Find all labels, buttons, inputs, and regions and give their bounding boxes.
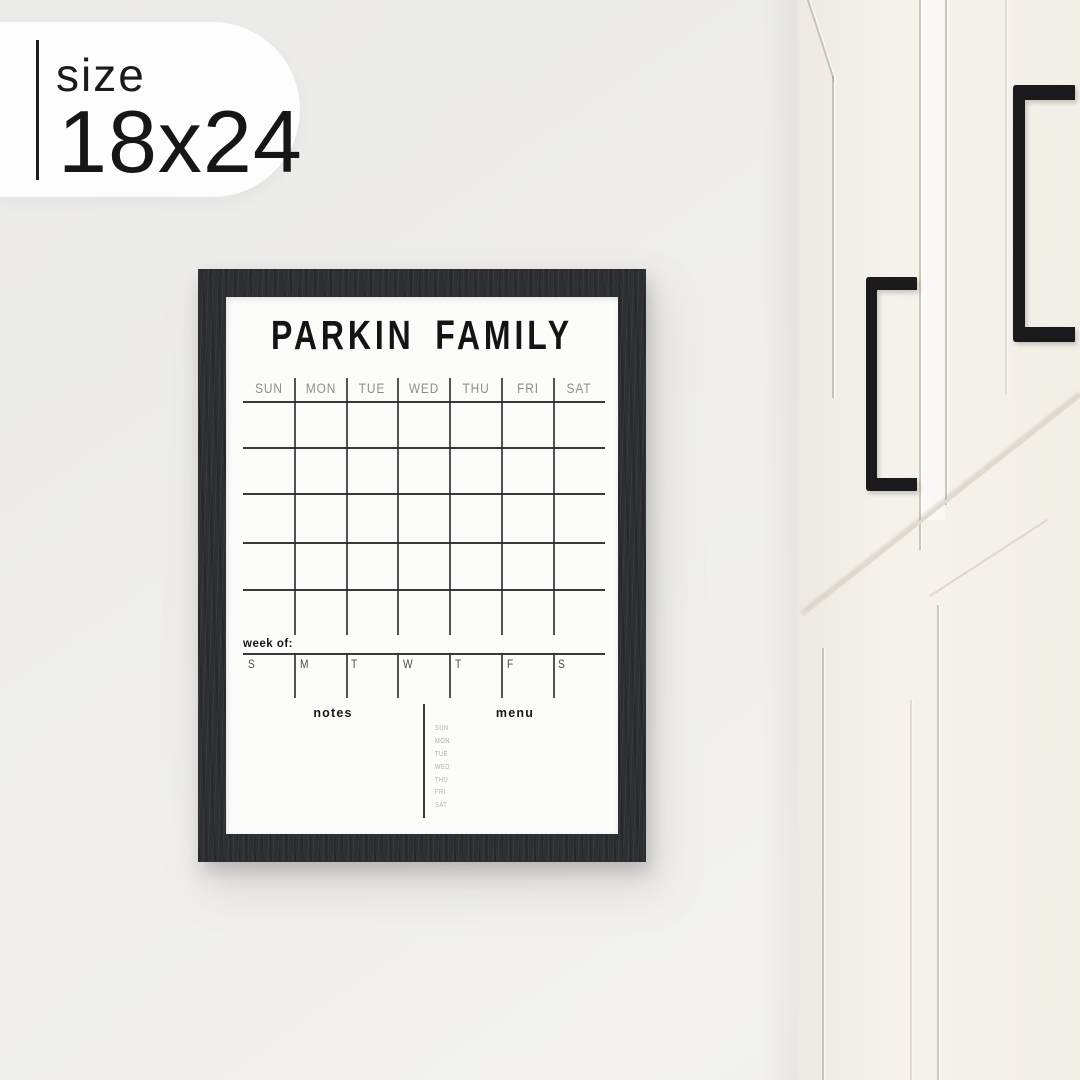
week-day-letter: S	[558, 657, 565, 671]
size-value: 18x24	[58, 98, 303, 186]
cabinet-door-gap	[937, 605, 939, 1080]
cabinet-panel-groove	[832, 76, 834, 398]
week-grid-vline	[501, 653, 503, 698]
framed-calendar: PARKIN FAMILY SUN MON TUE WED THU FRI SA…	[198, 269, 646, 862]
notes-menu-divider	[423, 704, 425, 818]
wall-corner-shadow	[762, 0, 798, 1080]
menu-day-fri: FRI	[435, 787, 450, 800]
menu-day-thu: THU	[435, 775, 450, 788]
day-header-wed: WED	[401, 382, 447, 398]
cabinet-panel-groove	[1005, 0, 1007, 395]
month-grid-hline	[243, 542, 605, 544]
day-header-fri: FRI	[505, 382, 551, 398]
menu-day-sat: SAT	[435, 800, 450, 813]
menu-day-wed: WED	[435, 762, 450, 775]
day-header-sun: SUN	[246, 382, 292, 398]
menu-day-sun: SUN	[435, 723, 450, 736]
day-header-mon: MON	[298, 382, 344, 398]
month-grid-vline	[501, 378, 503, 635]
day-header-tue: TUE	[349, 382, 395, 398]
week-day-letter: T	[351, 657, 357, 671]
week-grid-vline	[449, 653, 451, 698]
month-grid-vline	[346, 378, 348, 635]
calendar-title: PARKIN FAMILY	[269, 315, 575, 356]
week-grid-vline	[294, 653, 296, 698]
calendar-board: PARKIN FAMILY SUN MON TUE WED THU FRI SA…	[226, 297, 618, 834]
cabinet-handle	[1013, 85, 1075, 342]
month-grid-hline	[243, 493, 605, 495]
week-day-letter: T	[455, 657, 461, 671]
month-grid-vline	[294, 378, 296, 635]
month-grid-hline	[243, 447, 605, 449]
menu-day-tue: TUE	[435, 749, 450, 762]
month-grid-vline	[397, 378, 399, 635]
week-grid-vline	[346, 653, 348, 698]
month-grid-hline	[243, 589, 605, 591]
cabinet-handle	[866, 277, 917, 491]
week-day-letter: W	[403, 657, 413, 671]
week-grid-vline	[397, 653, 399, 698]
day-header-thu: THU	[453, 382, 499, 398]
month-grid-hline	[243, 401, 605, 403]
week-grid-vline	[553, 653, 555, 698]
menu-day-mon: MON	[435, 736, 450, 749]
month-grid-vline	[553, 378, 555, 635]
week-day-letter: F	[507, 657, 513, 671]
notes-label: notes	[243, 707, 423, 720]
cabinet-door-gap	[945, 0, 947, 505]
size-badge: size 18x24	[0, 22, 300, 197]
month-grid-vline	[449, 378, 451, 635]
cabinet-panel-groove	[910, 700, 912, 1080]
product-photo-scene: size 18x24 PARKIN FAMILY SUN MON TUE WED…	[0, 0, 1080, 1080]
week-day-letter: M	[300, 657, 309, 671]
week-day-letter: S	[248, 657, 255, 671]
day-header-sat: SAT	[556, 382, 602, 398]
cabinet-stile-highlight	[921, 0, 945, 520]
week-row-line	[243, 653, 605, 655]
menu-label: menu	[425, 707, 605, 720]
menu-day-list: SUN MON TUE WED THU FRI SAT	[435, 723, 453, 813]
badge-divider-line	[36, 40, 39, 180]
week-of-label: week of:	[243, 639, 293, 651]
cabinet-panel-groove	[822, 648, 824, 1080]
